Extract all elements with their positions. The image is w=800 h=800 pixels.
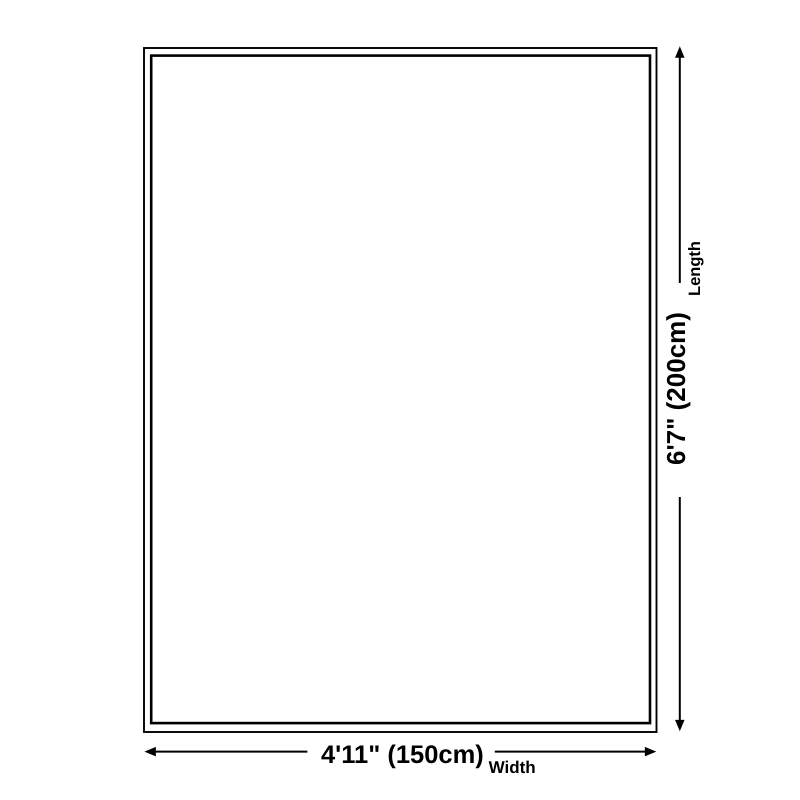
svg-text:Length: Length: [686, 241, 704, 296]
svg-text:6'7" (200cm): 6'7" (200cm): [661, 312, 691, 465]
svg-text:4'11" (150cm): 4'11" (150cm): [321, 741, 484, 769]
svg-text:Width: Width: [489, 758, 536, 777]
